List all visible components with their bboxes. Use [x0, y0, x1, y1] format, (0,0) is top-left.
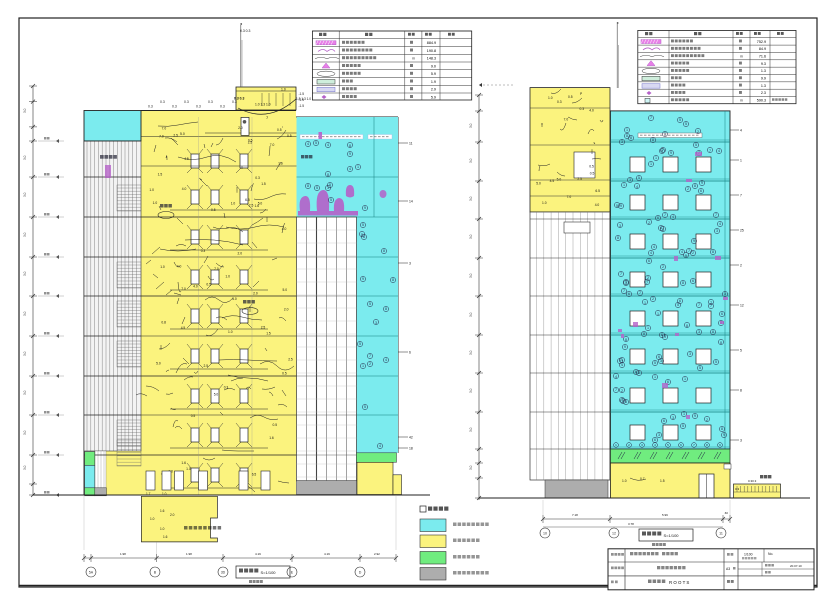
svg-text:1.0: 1.0 — [150, 517, 155, 521]
svg-text:S=1/100: S=1/100 — [261, 570, 277, 575]
svg-text:0.3: 0.3 — [557, 100, 562, 104]
svg-text:8: 8 — [327, 173, 329, 177]
svg-text:8: 8 — [652, 138, 654, 142]
svg-text:5.99: 5.99 — [662, 513, 668, 517]
svg-text:0.3: 0.3 — [184, 100, 189, 104]
svg-text:12: 12 — [612, 532, 616, 536]
svg-text:0.5: 0.5 — [287, 134, 292, 138]
svg-text:1.0 1.3 1.0: 1.0 1.3 1.0 — [255, 103, 271, 107]
svg-text:2.5: 2.5 — [577, 177, 582, 181]
svg-text:0.3: 0.3 — [580, 107, 585, 111]
svg-text:7: 7 — [664, 213, 666, 217]
svg-text:8: 8 — [682, 281, 684, 285]
svg-text:5: 5 — [685, 122, 687, 126]
svg-text:148.3: 148.3 — [427, 57, 436, 61]
svg-text:1.6: 1.6 — [255, 204, 260, 208]
svg-text:7: 7 — [646, 281, 648, 285]
svg-text:2: 2 — [740, 264, 742, 268]
svg-text:6: 6 — [660, 226, 662, 230]
svg-text:8: 8 — [630, 136, 632, 140]
svg-text:0.3: 0.3 — [201, 249, 206, 253]
svg-text:0.3: 0.3 — [160, 100, 165, 104]
svg-text:6: 6 — [663, 419, 665, 423]
svg-text:9: 9 — [362, 277, 364, 281]
svg-text:7.0: 7.0 — [162, 126, 167, 130]
svg-text:3: 3 — [740, 439, 742, 443]
svg-text:8: 8 — [712, 250, 714, 254]
svg-text:1.0: 1.0 — [153, 201, 158, 205]
svg-text:6: 6 — [628, 292, 630, 296]
svg-text:3.0: 3.0 — [469, 465, 473, 470]
svg-text:0.3: 0.3 — [172, 105, 177, 109]
svg-text:8: 8 — [617, 236, 619, 240]
svg-text:4: 4 — [327, 143, 329, 147]
svg-text:3D: 3D — [221, 571, 226, 575]
svg-text:1.6: 1.6 — [163, 535, 168, 539]
svg-text:9: 9 — [701, 181, 703, 185]
svg-text:7: 7 — [662, 148, 664, 152]
svg-text:1.3: 1.3 — [761, 69, 766, 73]
svg-text:9: 9 — [624, 345, 626, 349]
svg-text:6: 6 — [409, 351, 411, 355]
svg-text:1: 1 — [647, 326, 649, 330]
svg-text:2: 2 — [648, 221, 650, 225]
svg-text:5: 5 — [616, 204, 618, 208]
svg-text:8: 8 — [740, 389, 742, 393]
svg-text:7: 7 — [615, 388, 617, 392]
svg-text:5: 5 — [315, 141, 317, 145]
svg-text:2.5: 2.5 — [173, 133, 178, 137]
svg-text:1: 1 — [657, 312, 659, 316]
svg-text:14: 14 — [409, 200, 413, 204]
svg-text:1: 1 — [623, 183, 625, 187]
svg-text:4: 4 — [681, 250, 683, 254]
svg-text:3.78: 3.78 — [628, 522, 634, 526]
svg-text:71.6: 71.6 — [759, 54, 766, 58]
svg-text:5: 5 — [362, 223, 364, 227]
svg-text:2.3: 2.3 — [761, 91, 766, 95]
svg-text:1.0: 1.0 — [149, 188, 154, 192]
svg-text:7: 7 — [688, 249, 690, 253]
svg-text:4: 4 — [718, 149, 720, 153]
svg-text:3.0: 3.0 — [23, 192, 27, 197]
svg-text:2: 2 — [652, 297, 654, 301]
svg-text:7: 7 — [623, 289, 625, 293]
svg-text:8: 8 — [349, 144, 351, 148]
svg-text:2: 2 — [621, 389, 623, 393]
svg-text:5: 5 — [364, 405, 366, 409]
svg-text:1.5: 1.5 — [660, 479, 665, 483]
svg-text:7: 7 — [740, 194, 742, 198]
svg-text:884.9: 884.9 — [427, 41, 436, 45]
svg-text:0.5: 0.5 — [589, 165, 594, 169]
svg-text:7.0: 7.0 — [181, 287, 186, 291]
svg-text:1.9: 1.9 — [431, 80, 436, 84]
svg-text:20.07.10: 20.07.10 — [790, 564, 802, 568]
svg-text:3.0: 3.0 — [23, 465, 27, 470]
svg-text:8: 8 — [643, 332, 645, 336]
svg-text:7: 7 — [369, 354, 371, 358]
svg-text:8: 8 — [363, 235, 365, 239]
svg-text:5: 5 — [699, 366, 701, 370]
svg-text:3.0: 3.0 — [469, 196, 473, 201]
svg-text:3.0: 3.0 — [23, 155, 27, 160]
svg-text:4.5: 4.5 — [550, 179, 555, 183]
svg-text:1: 1 — [650, 162, 652, 166]
svg-text:4: 4 — [615, 375, 617, 379]
svg-text:9.9: 9.9 — [761, 77, 766, 81]
svg-text:1.0: 1.0 — [160, 527, 165, 531]
svg-text:4.5: 4.5 — [181, 326, 186, 330]
svg-text:3.0: 3.0 — [23, 232, 27, 237]
svg-text:4.0: 4.0 — [182, 187, 187, 191]
svg-text:9: 9 — [364, 206, 366, 210]
svg-text:1.5: 1.5 — [158, 173, 163, 177]
svg-text:6: 6 — [661, 333, 663, 337]
svg-text:1.5: 1.5 — [266, 331, 271, 335]
svg-text:6.5: 6.5 — [245, 198, 250, 202]
svg-text:7: 7 — [710, 304, 712, 308]
svg-text:S=1/100: S=1/100 — [664, 533, 680, 538]
svg-text:1.0: 1.0 — [228, 330, 233, 334]
svg-text:5.9: 5.9 — [431, 95, 436, 99]
svg-text:8: 8 — [694, 184, 696, 188]
svg-text:3: 3 — [716, 229, 718, 233]
svg-text:4: 4 — [740, 129, 742, 133]
svg-text:84.9: 84.9 — [759, 47, 766, 51]
svg-text:D: D — [359, 571, 362, 575]
svg-text:0.3: 0.3 — [148, 105, 153, 109]
svg-text:5: 5 — [715, 360, 717, 364]
svg-text:4.19: 4.19 — [324, 552, 330, 556]
svg-text:8: 8 — [686, 324, 688, 328]
svg-text:2.5: 2.5 — [261, 325, 266, 329]
svg-text:6: 6 — [721, 312, 723, 316]
svg-text:4.19: 4.19 — [255, 552, 261, 556]
svg-text:2.9: 2.9 — [431, 88, 436, 92]
svg-text:7: 7 — [650, 116, 652, 120]
svg-text:5.0: 5.0 — [156, 361, 161, 365]
svg-text:4.0: 4.0 — [589, 109, 594, 113]
svg-text:1.5: 1.5 — [261, 182, 266, 186]
svg-text:1.3: 1.3 — [761, 84, 766, 88]
svg-text:2: 2 — [692, 251, 694, 255]
svg-text:7.0: 7.0 — [270, 143, 275, 147]
svg-text:5: 5 — [654, 361, 656, 365]
svg-text:0.3: 0.3 — [255, 176, 260, 180]
svg-text:7: 7 — [620, 272, 622, 276]
svg-text:8: 8 — [385, 307, 387, 311]
svg-text:0.5: 0.5 — [191, 414, 196, 418]
svg-text:0.3: 0.3 — [220, 105, 225, 109]
svg-text:m: m — [412, 57, 415, 61]
svg-text:8: 8 — [307, 184, 309, 188]
svg-text:3.0: 3.0 — [23, 430, 27, 435]
svg-text:3.0: 3.0 — [23, 351, 27, 356]
svg-text:3.0: 3.0 — [469, 123, 473, 128]
svg-text:1: 1 — [357, 165, 359, 169]
svg-text:9: 9 — [693, 239, 695, 243]
svg-text:11: 11 — [719, 532, 723, 536]
svg-text:8: 8 — [392, 278, 394, 282]
svg-text:1.0: 1.0 — [160, 265, 165, 269]
svg-text:8: 8 — [720, 341, 722, 345]
svg-text:7: 7 — [698, 303, 700, 307]
svg-text:1.6: 1.6 — [160, 509, 165, 513]
svg-text:5.0: 5.0 — [283, 288, 288, 292]
svg-text:6: 6 — [648, 259, 650, 263]
svg-text:0.5: 0.5 — [206, 282, 211, 286]
svg-text:1.0: 1.0 — [225, 274, 230, 278]
svg-text:1.0: 1.0 — [548, 96, 553, 100]
svg-text:7: 7 — [715, 213, 717, 217]
svg-text:2: 2 — [697, 130, 699, 134]
svg-text:2.5: 2.5 — [288, 358, 293, 362]
svg-text:6: 6 — [657, 216, 659, 220]
svg-text:No.: No. — [768, 552, 773, 556]
svg-text:1.0: 1.0 — [281, 88, 286, 92]
svg-text:2: 2 — [369, 362, 371, 366]
svg-text:1.0: 1.0 — [231, 202, 236, 206]
svg-text:12: 12 — [740, 304, 744, 308]
svg-text:4: 4 — [672, 215, 674, 219]
svg-text:1.6: 1.6 — [278, 162, 283, 166]
svg-text:-1.5: -1.5 — [299, 98, 305, 102]
svg-text:5: 5 — [677, 303, 679, 307]
svg-text:6: 6 — [679, 299, 681, 303]
svg-text:0.5: 0.5 — [568, 95, 573, 99]
svg-text:6: 6 — [692, 279, 694, 283]
svg-text:9.0: 9.0 — [431, 64, 436, 68]
svg-text:5.0: 5.0 — [214, 393, 219, 397]
svg-text:0.3: 0.3 — [196, 105, 201, 109]
svg-text:6: 6 — [654, 438, 656, 442]
svg-text:4: 4 — [719, 222, 721, 226]
svg-text:9: 9 — [620, 204, 622, 208]
svg-text:5: 5 — [638, 176, 640, 180]
svg-text:2.0: 2.0 — [170, 513, 175, 517]
svg-text:8: 8 — [626, 134, 628, 138]
svg-text:0.3: 0.3 — [232, 100, 237, 104]
svg-text:2.0: 2.0 — [238, 126, 243, 130]
svg-text:0.5: 0.5 — [590, 171, 595, 175]
svg-text:9: 9 — [694, 414, 696, 418]
svg-text:3.0: 3.0 — [469, 312, 473, 317]
svg-text:190.8: 190.8 — [427, 49, 436, 53]
svg-text:5: 5 — [695, 143, 697, 147]
svg-text:5: 5 — [369, 302, 371, 306]
svg-text:3: 3 — [672, 416, 674, 420]
svg-text:6.5: 6.5 — [252, 472, 257, 476]
svg-text:7: 7 — [709, 149, 711, 153]
svg-text:5.0: 5.0 — [180, 132, 185, 136]
svg-text:3.0: 3.0 — [469, 350, 473, 355]
svg-text:4.0: 4.0 — [282, 227, 287, 231]
svg-text:5.0: 5.0 — [232, 297, 237, 301]
svg-text:6: 6 — [700, 189, 702, 193]
svg-text:3: 3 — [409, 262, 411, 266]
svg-text:9.3: 9.3 — [761, 62, 766, 66]
svg-text:7.0: 7.0 — [567, 195, 572, 199]
svg-text:1.0: 1.0 — [186, 467, 191, 471]
svg-text:4: 4 — [653, 245, 655, 249]
svg-text:4: 4 — [379, 444, 381, 448]
svg-text:1: 1 — [654, 375, 656, 379]
svg-text:3.0: 3.0 — [23, 108, 27, 113]
svg-text:3.0: 3.0 — [23, 311, 27, 316]
svg-text:7.0: 7.0 — [564, 117, 569, 121]
svg-text:5.9: 5.9 — [431, 72, 436, 76]
svg-text:6.5: 6.5 — [595, 189, 600, 193]
svg-text:E: E — [291, 571, 294, 575]
svg-text:4.0: 4.0 — [193, 284, 198, 288]
svg-text:8: 8 — [712, 330, 714, 334]
svg-text:-1.5: -1.5 — [299, 92, 305, 96]
svg-text:5A: 5A — [89, 571, 94, 575]
svg-text:3: 3 — [629, 178, 631, 182]
svg-text:4: 4 — [385, 358, 387, 362]
svg-text:3.0: 3.0 — [469, 273, 473, 278]
svg-text:42: 42 — [409, 436, 413, 440]
svg-text:1: 1 — [621, 358, 623, 362]
svg-text:0.30.3: 0.30.3 — [748, 479, 757, 483]
svg-text:1: 1 — [684, 377, 686, 381]
svg-text:-1.5: -1.5 — [299, 104, 305, 108]
svg-text:11: 11 — [409, 142, 413, 146]
svg-text:3: 3 — [658, 433, 660, 437]
svg-text:A3: A3 — [726, 567, 730, 571]
svg-text:3: 3 — [689, 352, 691, 356]
svg-text:1.98: 1.98 — [186, 552, 192, 556]
svg-text:4: 4 — [650, 251, 652, 255]
svg-text:1.6: 1.6 — [181, 461, 186, 465]
svg-text:7.0: 7.0 — [214, 267, 219, 271]
svg-text:3: 3 — [660, 359, 662, 363]
svg-text:0.8: 0.8 — [161, 321, 166, 325]
svg-text:1: 1 — [362, 364, 364, 368]
svg-text:2: 2 — [662, 265, 664, 269]
svg-text:3: 3 — [375, 321, 377, 325]
svg-text:590.3: 590.3 — [757, 99, 766, 103]
svg-text:5: 5 — [359, 342, 361, 346]
svg-text:2: 2 — [622, 399, 624, 403]
svg-text:5: 5 — [664, 132, 666, 136]
svg-text:3.0: 3.0 — [469, 427, 473, 432]
svg-text:0.5: 0.5 — [282, 371, 287, 375]
svg-text:m: m — [740, 99, 743, 103]
svg-text:2.92: 2.92 — [374, 552, 380, 556]
svg-text:.60: .60 — [724, 511, 728, 515]
svg-text:3: 3 — [698, 330, 700, 334]
svg-text:2: 2 — [687, 187, 689, 191]
svg-text:1.98: 1.98 — [120, 552, 126, 556]
svg-text:25: 25 — [740, 229, 744, 233]
svg-text:10: 10 — [543, 532, 547, 536]
svg-text:1: 1 — [626, 128, 628, 132]
svg-text:0.3: 0.3 — [208, 100, 213, 104]
svg-text:7.18: 7.18 — [572, 513, 578, 517]
svg-text:3: 3 — [327, 186, 329, 190]
svg-text:4: 4 — [349, 167, 351, 171]
svg-text:9: 9 — [670, 151, 672, 155]
svg-text:6: 6 — [658, 355, 660, 359]
svg-text:2: 2 — [706, 418, 708, 422]
svg-text:5: 5 — [316, 186, 318, 190]
svg-text:2.0: 2.0 — [238, 251, 243, 255]
svg-text:1: 1 — [740, 159, 742, 163]
svg-text:18: 18 — [409, 447, 413, 451]
svg-text:B: B — [154, 571, 157, 575]
svg-text:R O O T S: R O O T S — [669, 580, 689, 585]
svg-text:1: 1 — [683, 412, 685, 416]
svg-text:m: m — [740, 54, 743, 58]
svg-text:5: 5 — [685, 254, 687, 258]
svg-text:2.5: 2.5 — [249, 203, 254, 207]
svg-text:7: 7 — [639, 291, 641, 295]
svg-text:8: 8 — [721, 427, 723, 431]
svg-text:8: 8 — [625, 338, 627, 342]
svg-text:5: 5 — [682, 424, 684, 428]
svg-text:1: 1 — [655, 156, 657, 160]
svg-text:0.3: 0.3 — [735, 487, 740, 491]
svg-text:752.9: 752.9 — [757, 40, 766, 44]
svg-text:3.0: 3.0 — [469, 234, 473, 239]
svg-text:0.5: 0.5 — [277, 128, 282, 132]
svg-text:0.5: 0.5 — [211, 208, 216, 212]
svg-text:1.0: 1.0 — [542, 201, 547, 205]
svg-text:3.0: 3.0 — [23, 271, 27, 276]
svg-text:3.0: 3.0 — [469, 388, 473, 393]
svg-text:5: 5 — [740, 349, 742, 353]
svg-text:3.0: 3.0 — [23, 390, 27, 395]
svg-text:3.0: 3.0 — [469, 158, 473, 163]
svg-text:5.0: 5.0 — [536, 181, 541, 185]
svg-text:5: 5 — [679, 118, 681, 122]
svg-text:1: 1 — [644, 301, 646, 305]
svg-text:4: 4 — [307, 142, 309, 146]
svg-text:5: 5 — [330, 198, 332, 202]
svg-text:3: 3 — [625, 281, 627, 285]
svg-text:1.0: 1.0 — [622, 479, 627, 483]
svg-text:4.0: 4.0 — [595, 203, 600, 207]
svg-text:9: 9 — [723, 433, 725, 437]
svg-text:2.0: 2.0 — [284, 308, 289, 312]
svg-text:4: 4 — [621, 363, 623, 367]
svg-text:1/100: 1/100 — [744, 553, 753, 557]
svg-text:0.3 0.3: 0.3 0.3 — [240, 29, 250, 33]
svg-text:4: 4 — [636, 185, 638, 189]
svg-text:3: 3 — [724, 292, 726, 296]
svg-text:1.6: 1.6 — [269, 436, 274, 440]
svg-text:6: 6 — [635, 370, 637, 374]
svg-text:3: 3 — [619, 224, 621, 228]
svg-text:9: 9 — [349, 152, 351, 156]
svg-text:2.5: 2.5 — [204, 364, 209, 368]
svg-text:3: 3 — [621, 140, 623, 144]
svg-text:8: 8 — [383, 249, 385, 253]
svg-text:7.0: 7.0 — [159, 134, 164, 138]
svg-text:2.0: 2.0 — [253, 292, 258, 296]
svg-text:2.5: 2.5 — [248, 141, 253, 145]
svg-text:0.5: 0.5 — [273, 423, 278, 427]
svg-text:5.0: 5.0 — [557, 178, 562, 182]
